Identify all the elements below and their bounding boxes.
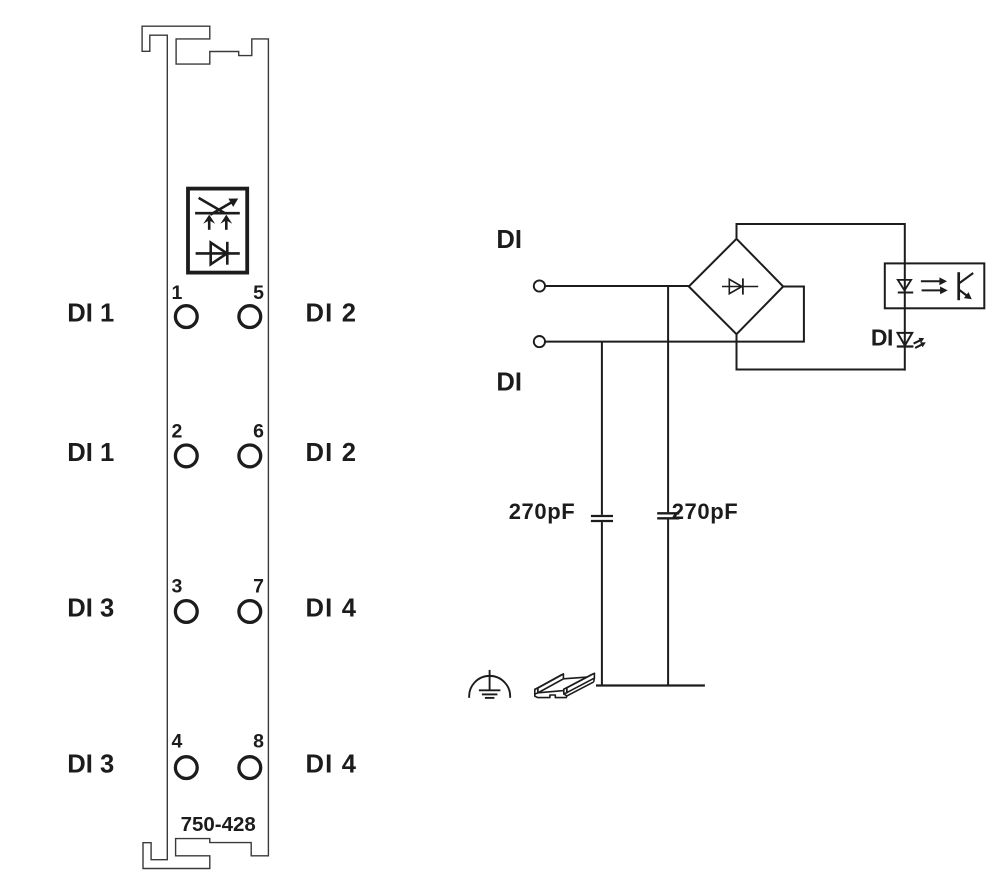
svg-text:DI: DI [496, 226, 522, 254]
svg-text:DI: DI [871, 325, 893, 351]
svg-text:DI 2: DI 2 [306, 439, 358, 467]
svg-text:270pF: 270pF [509, 499, 576, 524]
svg-text:6: 6 [253, 420, 264, 442]
svg-text:270pF: 270pF [672, 499, 739, 524]
svg-text:4: 4 [172, 730, 183, 752]
svg-text:DI 1: DI 1 [67, 439, 114, 467]
svg-text:DI 3: DI 3 [67, 594, 114, 622]
svg-text:5: 5 [253, 282, 264, 304]
svg-text:1: 1 [172, 282, 183, 304]
svg-text:2: 2 [172, 420, 183, 442]
svg-text:DI 4: DI 4 [306, 751, 358, 779]
svg-text:8: 8 [253, 730, 264, 752]
svg-text:750-428: 750-428 [181, 813, 256, 836]
svg-text:DI: DI [496, 369, 522, 397]
svg-text:DI 4: DI 4 [306, 594, 358, 622]
svg-text:DI 2: DI 2 [306, 299, 358, 327]
svg-text:3: 3 [172, 576, 183, 598]
svg-text:DI 3: DI 3 [67, 751, 114, 779]
svg-text:7: 7 [253, 576, 264, 598]
svg-text:DI 1: DI 1 [67, 299, 114, 327]
